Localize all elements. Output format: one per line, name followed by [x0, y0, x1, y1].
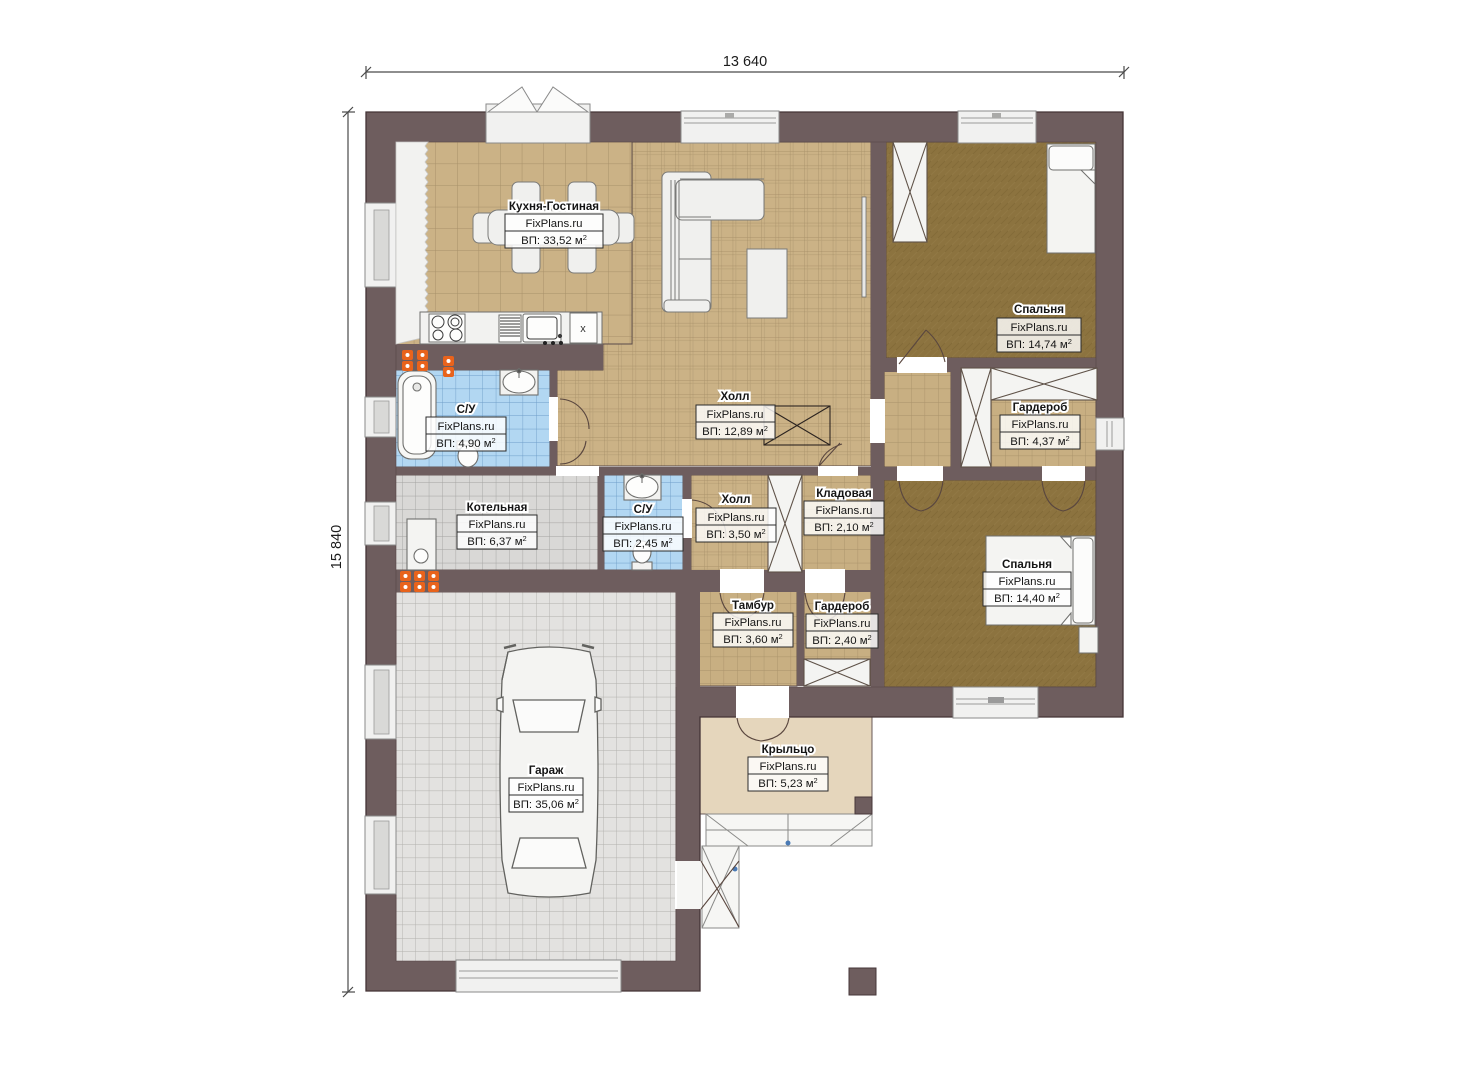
svg-text:ВП: 4,90 м2: ВП: 4,90 м2 [436, 436, 495, 450]
svg-text:ВП: 35,06 м2: ВП: 35,06 м2 [513, 797, 579, 811]
svg-text:ВП: 2,45 м2: ВП: 2,45 м2 [613, 536, 672, 550]
svg-text:FixPlans.ru: FixPlans.ru [438, 421, 495, 433]
svg-text:Гардероб: Гардероб [815, 600, 870, 613]
svg-text:ВП: 3,50 м2: ВП: 3,50 м2 [706, 527, 765, 541]
svg-text:Спальня: Спальня [1014, 303, 1064, 316]
svg-text:ВП: 2,10 м2: ВП: 2,10 м2 [814, 520, 873, 534]
svg-text:Холл: Холл [721, 493, 750, 506]
svg-text:С/У: С/У [457, 403, 477, 416]
svg-text:С/У: С/У [634, 503, 654, 516]
svg-text:FixPlans.ru: FixPlans.ru [526, 218, 583, 230]
svg-text:Спальня: Спальня [1002, 558, 1052, 571]
svg-text:FixPlans.ru: FixPlans.ru [814, 618, 871, 630]
svg-text:FixPlans.ru: FixPlans.ru [1011, 322, 1068, 334]
svg-text:ВП: 14,74 м2: ВП: 14,74 м2 [1006, 337, 1072, 351]
svg-text:ВП: 2,40 м2: ВП: 2,40 м2 [812, 633, 871, 647]
svg-text:Котельная: Котельная [467, 501, 528, 514]
svg-text:FixPlans.ru: FixPlans.ru [469, 519, 526, 531]
svg-text:15 840: 15 840 [329, 525, 345, 569]
svg-text:Гараж: Гараж [529, 764, 564, 777]
svg-text:FixPlans.ru: FixPlans.ru [760, 761, 817, 773]
svg-text:ВП: 6,37 м2: ВП: 6,37 м2 [467, 534, 526, 548]
svg-text:FixPlans.ru: FixPlans.ru [518, 782, 575, 794]
svg-text:ВП: 3,60 м2: ВП: 3,60 м2 [723, 632, 782, 646]
svg-text:ВП: 5,23 м2: ВП: 5,23 м2 [758, 776, 817, 790]
svg-text:Кладовая: Кладовая [816, 487, 872, 500]
svg-text:ВП: 4,37 м2: ВП: 4,37 м2 [1010, 434, 1069, 448]
svg-text:13 640: 13 640 [723, 54, 767, 70]
svg-text:Гардероб: Гардероб [1013, 401, 1068, 414]
svg-text:FixPlans.ru: FixPlans.ru [725, 617, 782, 629]
svg-text:Холл: Холл [720, 390, 749, 403]
svg-text:FixPlans.ru: FixPlans.ru [1012, 419, 1069, 431]
svg-text:FixPlans.ru: FixPlans.ru [707, 409, 764, 421]
svg-text:Крыльцо: Крыльцо [762, 743, 815, 756]
svg-text:FixPlans.ru: FixPlans.ru [999, 576, 1056, 588]
svg-text:ВП: 12,89 м2: ВП: 12,89 м2 [702, 424, 768, 438]
svg-text:x: x [580, 323, 586, 335]
svg-text:FixPlans.ru: FixPlans.ru [708, 512, 765, 524]
svg-text:FixPlans.ru: FixPlans.ru [816, 505, 873, 517]
svg-text:ВП: 14,40 м2: ВП: 14,40 м2 [994, 591, 1060, 605]
svg-text:Тамбур: Тамбур [732, 599, 774, 612]
svg-text:Кухня-Гостиная: Кухня-Гостиная [509, 200, 599, 213]
svg-text:ВП: 33,52 м2: ВП: 33,52 м2 [521, 233, 587, 247]
svg-text:FixPlans.ru: FixPlans.ru [615, 521, 672, 533]
